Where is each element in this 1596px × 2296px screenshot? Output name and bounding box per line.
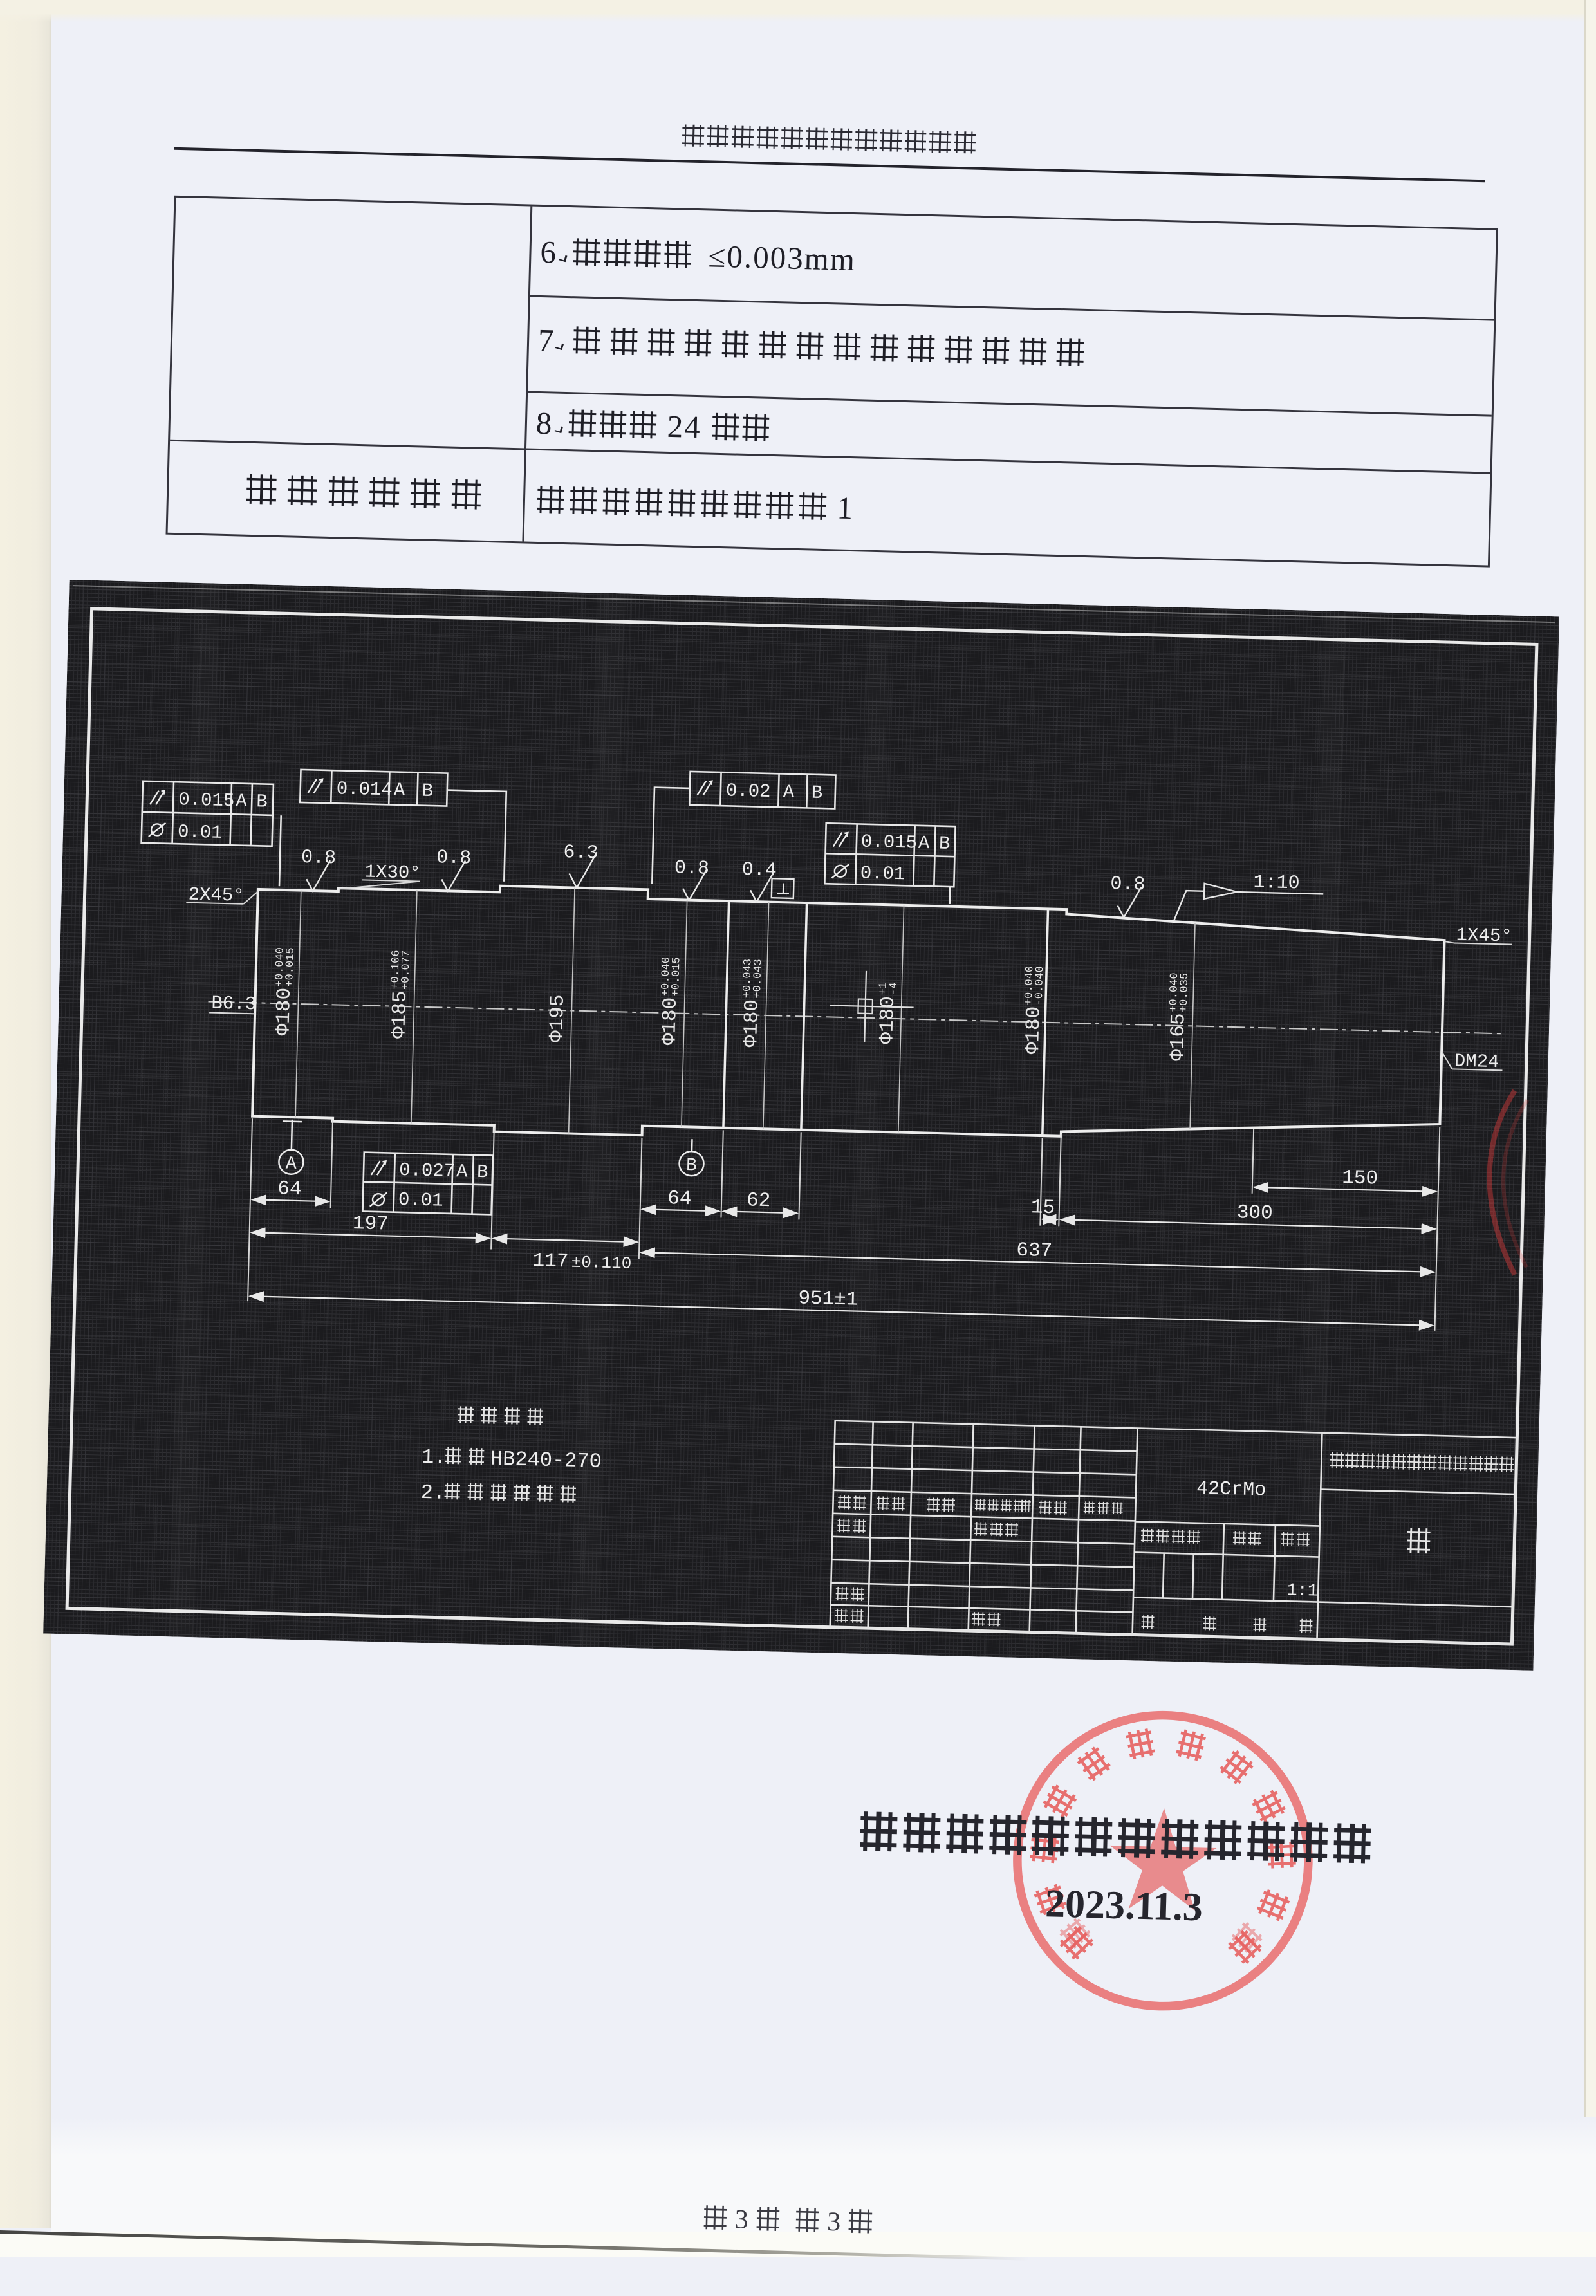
svg-text:+0.015: +0.015 (670, 957, 683, 997)
svg-text:0.014: 0.014 (336, 778, 393, 801)
svg-text:Φ185: Φ185 (388, 990, 412, 1039)
svg-text:0.8: 0.8 (1110, 873, 1146, 896)
svg-text:0.8: 0.8 (301, 847, 337, 869)
svg-text:0.01: 0.01 (860, 863, 905, 885)
svg-text:Φ180: Φ180 (876, 996, 900, 1044)
svg-text:64: 64 (667, 1187, 692, 1210)
svg-text:Φ180: Φ180 (1022, 1006, 1046, 1054)
svg-text:A: A (286, 1154, 297, 1174)
svg-text:6.3: 6.3 (563, 842, 598, 864)
svg-text:150: 150 (1342, 1167, 1378, 1190)
svg-text:0.8: 0.8 (436, 847, 472, 869)
svg-text:2.: 2. (420, 1481, 445, 1505)
svg-text:B: B (939, 833, 951, 855)
svg-text:B6.3: B6.3 (211, 993, 256, 1015)
svg-text:0.4: 0.4 (741, 859, 777, 882)
svg-text:1:10: 1:10 (1253, 872, 1300, 895)
svg-text:B: B (256, 791, 268, 812)
svg-text:951±1: 951±1 (798, 1287, 858, 1311)
svg-text:B: B (422, 781, 433, 802)
svg-text:Φ195: Φ195 (546, 994, 570, 1042)
svg-text:1.: 1. (422, 1445, 447, 1470)
svg-text:15: 15 (1031, 1196, 1055, 1219)
svg-text:64: 64 (277, 1178, 302, 1201)
svg-text:0.02: 0.02 (725, 780, 770, 802)
svg-text:±0.110: ±0.110 (571, 1253, 631, 1273)
svg-text:+0.035: +0.035 (1178, 973, 1192, 1013)
svg-text:1:1: 1:1 (1286, 1581, 1318, 1601)
svg-text:+0.077: +0.077 (400, 950, 413, 990)
svg-text:B: B (686, 1156, 698, 1176)
svg-text:B: B (477, 1162, 488, 1183)
svg-text:62: 62 (747, 1189, 771, 1212)
svg-text:0.01: 0.01 (178, 821, 223, 844)
svg-text:HB240-270: HB240-270 (490, 1447, 602, 1474)
svg-text:A: A (783, 782, 795, 803)
svg-text:Φ180: Φ180 (740, 999, 764, 1048)
svg-text:A: A (918, 833, 931, 854)
svg-text:-4: -4 (887, 982, 900, 995)
svg-text:0.027: 0.027 (399, 1160, 456, 1182)
svg-text:0.015: 0.015 (178, 789, 235, 811)
svg-text:117: 117 (532, 1250, 569, 1273)
svg-text:0.015: 0.015 (861, 831, 918, 854)
svg-text:Φ180: Φ180 (658, 997, 682, 1045)
svg-text:A: A (236, 790, 248, 811)
svg-text:197: 197 (353, 1212, 389, 1236)
svg-text:A: A (393, 780, 405, 801)
svg-text:Φ165: Φ165 (1167, 1013, 1191, 1061)
svg-text:0.8: 0.8 (674, 857, 709, 880)
svg-text:B: B (811, 782, 822, 804)
svg-text:42CrMo: 42CrMo (1196, 1478, 1267, 1502)
svg-text:Φ180: Φ180 (272, 988, 296, 1036)
svg-text:637: 637 (1016, 1239, 1053, 1263)
svg-text:0.01: 0.01 (398, 1189, 443, 1212)
svg-text:A: A (456, 1161, 469, 1182)
svg-text:-0.040: -0.040 (1034, 966, 1047, 1006)
svg-text:+0.043: +0.043 (752, 959, 765, 999)
svg-text:300: 300 (1236, 1201, 1273, 1225)
svg-text:+0.015: +0.015 (284, 947, 297, 987)
